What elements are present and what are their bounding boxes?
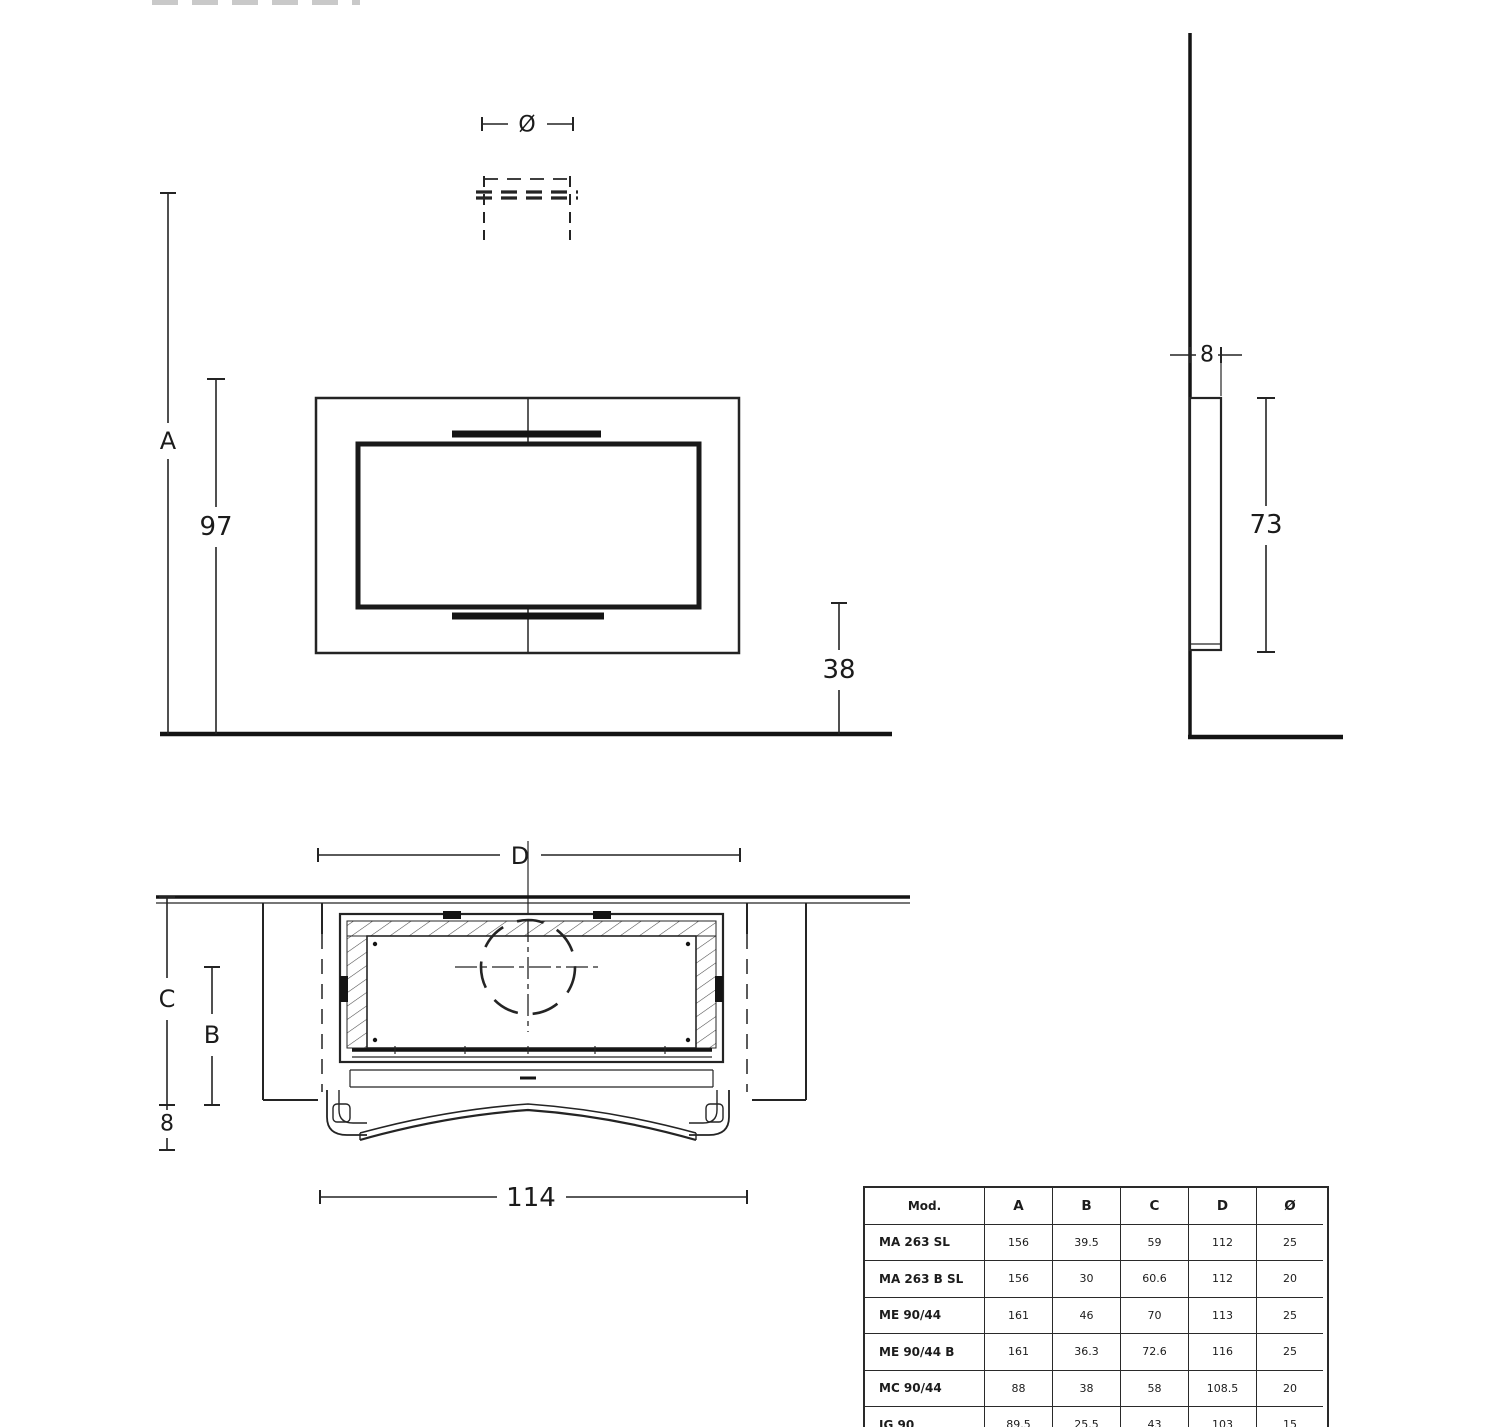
table-cell: 30: [1053, 1261, 1121, 1298]
table-row-model: ME 90/44: [865, 1298, 985, 1335]
fireplace-dimension-sheet: Ø A: [0, 0, 1500, 1427]
plan-left-chase-wall: [263, 903, 322, 1100]
plan-side-tab-left: [340, 976, 348, 1002]
plan-top-tab-right: [593, 911, 611, 919]
table-header-d: D: [1189, 1188, 1257, 1225]
table-cell: 70: [1121, 1298, 1189, 1335]
plan-screw-dot: [373, 942, 377, 946]
dimension-8-side: 8: [1170, 343, 1242, 397]
table-row-model: MA 263 B SL: [865, 1261, 985, 1298]
table-cell: 58: [1121, 1371, 1189, 1408]
dimension-8-side-label: 8: [1200, 343, 1214, 368]
plan-curved-fascia: [360, 1104, 696, 1140]
plan-right-chase-wall: [747, 903, 806, 1100]
flue-collar-dashed: [476, 176, 578, 240]
table-cell: 161: [985, 1298, 1053, 1335]
dimension-D: D: [318, 842, 740, 870]
table-cell: 25: [1257, 1298, 1323, 1335]
front-view: Ø A: [160, 113, 892, 735]
table-cell: 38: [1053, 1371, 1121, 1408]
model-dimensions-table: Mod. A B C D Ø MA 263 SL 156 39.5 59 112…: [863, 1186, 1329, 1427]
table-cell: 112: [1189, 1225, 1257, 1262]
table-cell: 36.3: [1053, 1334, 1121, 1371]
table-cell: 113: [1189, 1298, 1257, 1335]
table-cell: 46: [1053, 1298, 1121, 1335]
dimension-38: 38: [822, 603, 855, 734]
dimension-C: C: [159, 897, 176, 1105]
plan-top-tab-left: [443, 911, 461, 919]
table-cell: 59: [1121, 1225, 1189, 1262]
dimension-C-label: C: [159, 985, 176, 1013]
table-cell: 156: [985, 1261, 1053, 1298]
table-cell: 60.6: [1121, 1261, 1189, 1298]
dimension-73: 73: [1249, 398, 1282, 652]
table-cell: 72.6: [1121, 1334, 1189, 1371]
dimension-A: A: [160, 193, 177, 734]
table-cell: 161: [985, 1334, 1053, 1371]
dimension-114: 114: [320, 1183, 747, 1213]
plan-screw-dot: [686, 1038, 690, 1042]
plan-insulation-top: [347, 921, 716, 936]
diameter-label: Ø: [518, 113, 535, 138]
table-cell: 156: [985, 1225, 1053, 1262]
table-row-model: ME 90/44 B: [865, 1334, 985, 1371]
dimension-38-label: 38: [822, 655, 855, 685]
plan-insulation-right: [696, 936, 716, 1048]
table-header-c: C: [1121, 1188, 1189, 1225]
dimension-114-label: 114: [506, 1183, 556, 1213]
dimension-97-label: 97: [199, 512, 232, 542]
side-profile: [1190, 398, 1221, 650]
dimension-A-label: A: [160, 427, 177, 455]
dimension-B-label: B: [204, 1021, 220, 1049]
dimension-8-plan: 8: [159, 1105, 175, 1150]
table-cell: 112: [1189, 1261, 1257, 1298]
table-row-model: IG 90: [865, 1407, 985, 1427]
front-firebox-glass: [358, 444, 699, 607]
side-view: 8 73: [1170, 33, 1343, 737]
table-cell: 15: [1257, 1407, 1323, 1427]
table-cell: 116: [1189, 1334, 1257, 1371]
table-cell: 43: [1121, 1407, 1189, 1427]
plan-left-bracket: [327, 1090, 367, 1135]
table-cell: 20: [1257, 1261, 1323, 1298]
table-row-model: MC 90/44: [865, 1371, 985, 1408]
table-header-a: A: [985, 1188, 1053, 1225]
table-cell: 103: [1189, 1407, 1257, 1427]
dimension-8-plan-label: 8: [160, 1112, 174, 1137]
plan-side-tab-right: [715, 976, 723, 1002]
table-cell: 25: [1257, 1334, 1323, 1371]
plan-view: D: [156, 841, 910, 1213]
dimension-97: 97: [199, 379, 232, 734]
plan-screw-dot: [686, 942, 690, 946]
table-cell: 88: [985, 1371, 1053, 1408]
table-header-diameter: Ø: [1257, 1188, 1323, 1225]
table-cell: 39.5: [1053, 1225, 1121, 1262]
table-cell: 89.5: [985, 1407, 1053, 1427]
table-row-model: MA 263 SL: [865, 1225, 985, 1262]
dimension-D-label: D: [511, 842, 529, 870]
table-cell: 108.5: [1189, 1371, 1257, 1408]
plan-combustion-chamber: [367, 936, 696, 1048]
table-cell: 25: [1257, 1225, 1323, 1262]
table-header-mod: Mod.: [865, 1188, 985, 1225]
table-cell: 20: [1257, 1371, 1323, 1408]
dimension-B: B: [204, 967, 220, 1105]
dimension-73-label: 73: [1249, 510, 1282, 540]
diameter-dimension: Ø: [482, 113, 573, 138]
table-header-b: B: [1053, 1188, 1121, 1225]
table-cell: 25.5: [1053, 1407, 1121, 1427]
plan-insulation-left: [347, 936, 367, 1048]
plan-right-bracket: [689, 1090, 729, 1135]
plan-screw-dot: [373, 1038, 377, 1042]
